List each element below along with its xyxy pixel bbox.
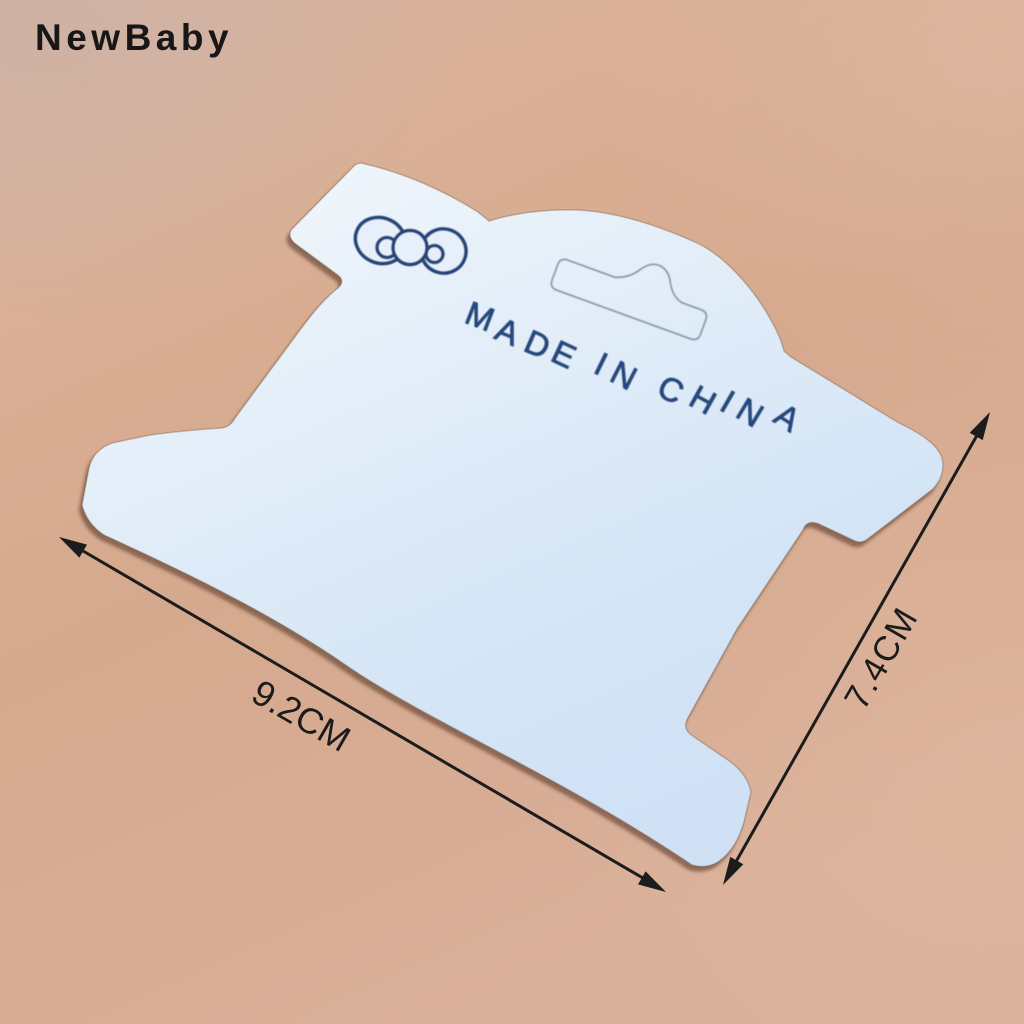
svg-text:NewBaby: NewBaby [35,17,233,58]
